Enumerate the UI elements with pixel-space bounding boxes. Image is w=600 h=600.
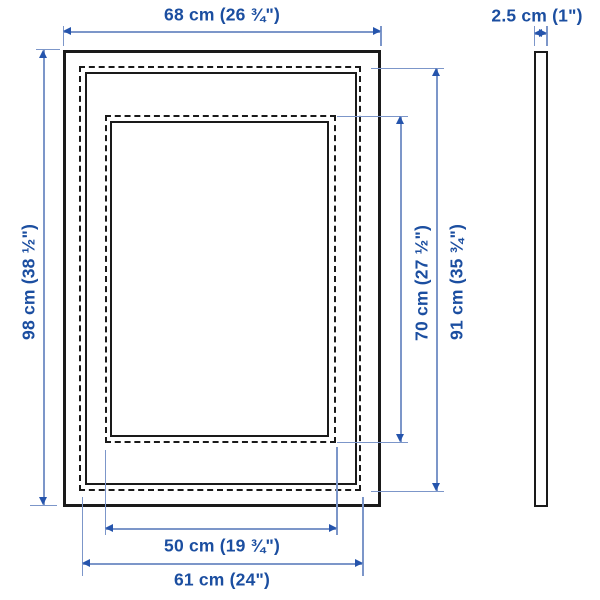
depth-label: 2.5 cm (1") <box>491 6 582 27</box>
arrow-right-icon <box>355 559 363 567</box>
outer-width-label: 68 cm (26 ¾") <box>164 5 280 26</box>
dimension-line <box>63 31 381 33</box>
dimension-line <box>436 68 438 491</box>
arrow-left-icon <box>63 27 71 35</box>
arrow-down-icon <box>396 434 404 442</box>
extension-line <box>336 447 338 535</box>
side-profile-rect <box>534 51 548 507</box>
back-width-label: 61 cm (24") <box>174 570 270 591</box>
dimension-line <box>105 528 337 530</box>
extension-line <box>105 450 107 535</box>
dimension-line <box>82 563 363 565</box>
picture-width-label: 50 cm (19 ¾") <box>164 536 280 557</box>
arrow-right-icon <box>373 27 381 35</box>
arrow-right-icon <box>539 29 547 37</box>
opening-solid-outline <box>110 121 329 437</box>
arrow-down-icon <box>39 497 47 505</box>
arrow-right-icon <box>329 524 337 532</box>
picture-height-label: 70 cm (27 ½") <box>412 225 433 341</box>
arrow-up-icon <box>396 116 404 124</box>
dimension-line <box>400 116 402 442</box>
arrow-left-icon <box>82 559 90 567</box>
arrow-down-icon <box>432 483 440 491</box>
arrow-left-icon <box>105 524 113 532</box>
dimension-line <box>43 50 45 505</box>
arrow-up-icon <box>39 50 47 58</box>
arrow-up-icon <box>432 68 440 76</box>
outer-height-label: 98 cm (38 ½") <box>19 224 40 340</box>
back-height-label: 91 cm (35 ¾") <box>447 224 468 340</box>
frame-dimension-diagram: 68 cm (26 ¾") 2.5 cm (1") 98 cm (38 ½") … <box>0 0 600 600</box>
